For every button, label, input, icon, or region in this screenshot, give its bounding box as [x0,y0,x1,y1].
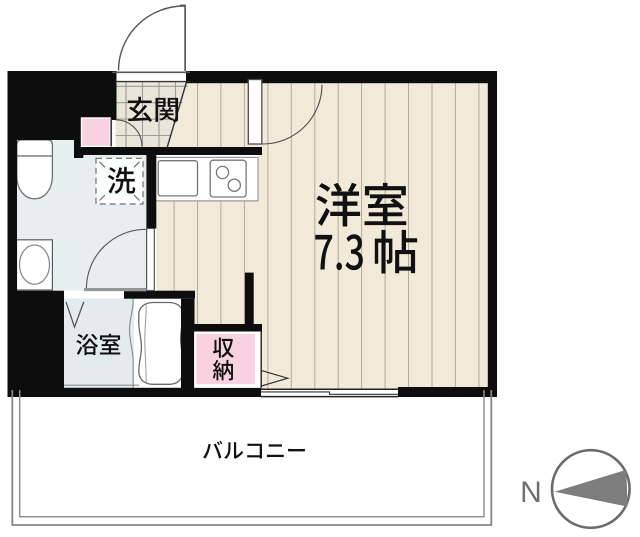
svg-text:N: N [520,476,542,509]
